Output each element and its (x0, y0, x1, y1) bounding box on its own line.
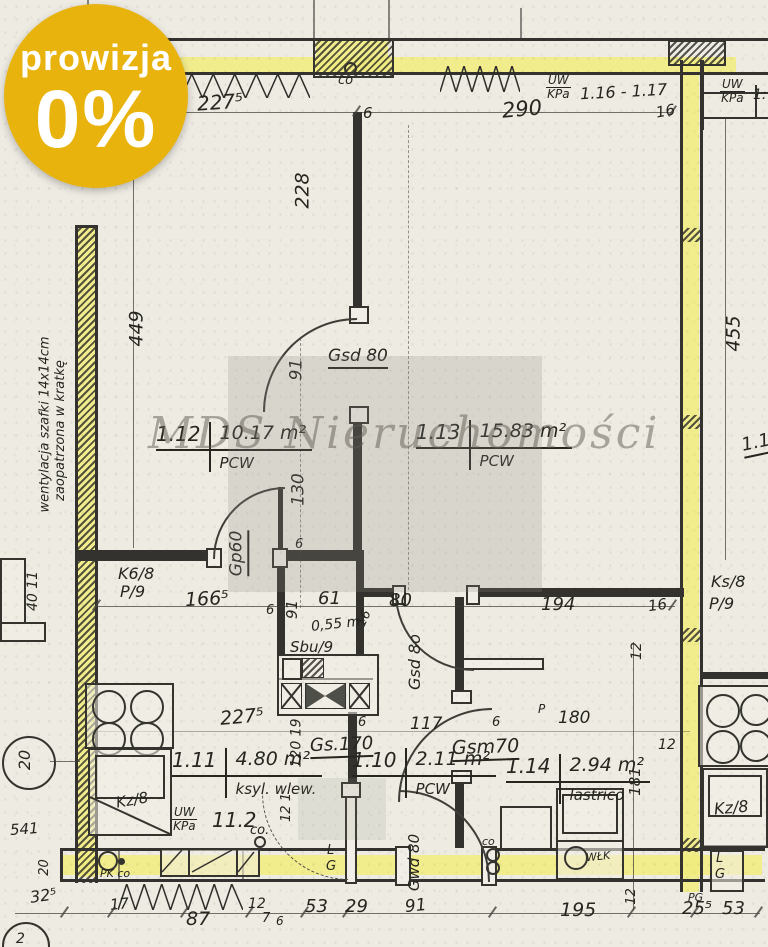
install-top-value: 1.16 - 1.17 (580, 82, 668, 103)
wall-right-hatch-2 (683, 415, 700, 429)
pipe-dot-icon (118, 858, 125, 865)
co-pipe-icon (486, 848, 500, 862)
room-113-floor: PCW (469, 449, 573, 470)
left-neighbor-box (0, 558, 26, 624)
g-label-box: G (715, 868, 725, 881)
dim-166-5: 166⁵ (185, 589, 230, 610)
install-tr-den: KPa (721, 92, 743, 105)
left-neighbor-box (0, 622, 46, 642)
wall-top-outer (85, 38, 768, 41)
shaft-label-k68: K6/8 (118, 566, 154, 582)
wall-right-hatch-3 (683, 628, 700, 642)
room-110-number: 1.10 (352, 748, 405, 777)
burner-icon (740, 730, 768, 762)
install-top-den: KPa (547, 88, 569, 101)
vent-note-line2: zaopatrzona w kratkę (54, 360, 67, 501)
axis-label-20: 20 (17, 750, 33, 770)
co-riser-label: co (338, 74, 353, 87)
dim-29: 29 (345, 898, 368, 916)
washer-drum-icon (564, 846, 588, 870)
dim-6-top: 6 (363, 106, 373, 121)
partition-112-113-upper (353, 112, 362, 318)
room-114-number: 1.14 (506, 754, 559, 783)
radiator-zigzag-bottom (118, 884, 243, 910)
axis-label-2: 2 (16, 932, 25, 946)
dim-449-vertical: 449 (128, 310, 147, 346)
burner-icon (706, 694, 740, 728)
vent-cell-small (282, 658, 302, 680)
dim-227-5-top: 227⁵ (196, 90, 243, 113)
l-label-mid: L (327, 844, 334, 857)
dim-130-vertical: 130 (291, 473, 308, 505)
install-label-top-right: UW KPa (720, 78, 745, 104)
tick (60, 906, 69, 918)
dim-17: 17 (109, 896, 129, 913)
floor-plan-scan: 20 2 227⁵ co 6 290 UW KPa 1.16 - 1.17 UW… (0, 0, 768, 947)
shaft-label-kz8-right: Kz/8 (713, 799, 749, 818)
shaft-label-p9-left: P/9 (120, 584, 145, 600)
dim-line (15, 913, 760, 914)
vent-x-icon (349, 683, 370, 709)
dim-120-19-vertical: 120 19 (290, 719, 304, 768)
dim-194: 194 (541, 596, 575, 614)
dim-12-vertical-bottom: 12 (625, 888, 638, 905)
dim-290: 290 (501, 97, 543, 121)
pk-co-label: PK co (100, 868, 130, 879)
dim-455-vertical: 455 (725, 315, 744, 351)
install-top-num: UW (546, 74, 571, 88)
door-label-gsd80: Gsd 80 (328, 348, 388, 369)
dim-53-right: 53 (722, 900, 745, 918)
burner-icon (92, 690, 126, 724)
burner-icon (706, 730, 740, 764)
shaft-label-sbu: Sbu/9 (290, 640, 333, 655)
shaft-label-p9-right: P/9 (709, 596, 734, 612)
sill-diagonals (158, 846, 258, 876)
dim-6-bottom: 6 (276, 915, 284, 927)
room-label-edge-cut: 1.1 (740, 431, 768, 458)
dim-32-5: 32⁵ (29, 886, 58, 906)
partition-112-113-lower (353, 420, 362, 553)
wall-right-inner (680, 60, 683, 892)
highlight-top-wall (88, 57, 736, 72)
door-label-gwd80: Gwd 80 (407, 834, 422, 891)
room-111-area: 4.80 m² (225, 748, 323, 777)
door-label-gsd8o: Gsd 8o (407, 634, 423, 690)
burner-icon (130, 690, 164, 724)
dim-40-11-vertical: 40 11 (26, 571, 40, 611)
washer-label-wlk: WŁK (585, 850, 610, 863)
dim-53-left: 53 (305, 898, 328, 916)
partition-112-kitchen-a (75, 550, 212, 561)
room-label-112: 1.12 10.17 m² PCW (156, 422, 312, 472)
dim-6-mid: 6 (266, 604, 274, 617)
dim-line (95, 606, 675, 607)
radiator-zigzag-top-right (440, 66, 520, 92)
room-112-number: 1.12 (156, 422, 209, 451)
dim-6-hall-a: 6 (358, 716, 366, 729)
install-label-kitchen: UW KPa (172, 806, 197, 832)
badge-line1: prowizja (20, 37, 172, 79)
dim-180: 180 (558, 710, 590, 727)
co-pipe-icon (486, 861, 500, 875)
dim-12-bath: 12 (658, 738, 676, 752)
dim-181-vertical: 181 (628, 767, 643, 796)
room-110-floor: PCW (405, 777, 496, 798)
dim-12-1-vertical: 12 1 (280, 793, 293, 822)
room-label-113: 1.13 15.83 m² PCW (416, 420, 572, 470)
gsd8o-door-leaf (462, 658, 544, 670)
dim-25-5: 25⁵ (682, 900, 712, 918)
centerline (408, 125, 409, 590)
dim-91-door: 91 (288, 359, 305, 381)
line-top-right-b (700, 117, 768, 119)
commission-badge: prowizja 0% (4, 4, 188, 188)
dim-117: 117 (410, 716, 442, 733)
dim-227-5-bottom: 227⁵ (219, 706, 264, 729)
install-tr-value: 1: (753, 88, 767, 102)
wall-bottom-left-cap (60, 848, 63, 882)
install-label-top: UW KPa (546, 74, 571, 100)
p-label: P (538, 703, 545, 715)
dim-91-mid: 91 (285, 600, 300, 619)
dim-20-vertical: 20 (38, 859, 51, 876)
room-113-area: 15.83 m² (469, 420, 573, 449)
neighbor-wall-right-a (700, 672, 768, 679)
axis-line (50, 761, 80, 762)
room-111-floor: ksyl. wlew. (225, 777, 323, 798)
dim-7: 7 (262, 912, 270, 925)
room-112-floor: PCW (209, 451, 313, 472)
co-bath-label: co (482, 836, 495, 847)
tick (488, 906, 497, 918)
vent-note-line1: wentylacja szafki 14x14cm (39, 336, 52, 512)
vent-cell-hatched (302, 658, 324, 678)
tick (668, 599, 677, 611)
vent-x-icon (281, 683, 302, 709)
dim-228-vertical: 228 (294, 172, 313, 208)
dim-541: 541 (10, 821, 40, 838)
line-above-pillar-right (388, 0, 390, 38)
install-kitchen-num: UW (172, 806, 197, 820)
tick (627, 906, 636, 918)
vent-bowtie-icon (305, 683, 346, 709)
dim-87: 87 (186, 910, 210, 929)
dim-12-bottom: 12 (248, 897, 266, 911)
dim-80: 80 (389, 592, 412, 610)
axis-circle-2 (2, 922, 50, 947)
dim-line (95, 731, 690, 732)
dim-6-hall-b: 6 (492, 716, 500, 729)
dim-61: 61 (318, 590, 341, 608)
burner-icon (740, 694, 768, 726)
dim-195: 195 (560, 901, 596, 920)
room-111-number: 1.11 (172, 748, 225, 777)
dim-6-partition: 6 (295, 538, 303, 551)
pillar-hatched-top-right (668, 40, 726, 66)
line-above-pillar-left (313, 0, 315, 38)
dim-16-right: 16 (647, 597, 668, 615)
room-110-area: 2.11 m² (405, 748, 496, 777)
dim-16-top-right: 16 (655, 102, 676, 120)
install-tr-num: UW (720, 78, 745, 92)
dim-12-right-wall: 12 (630, 642, 644, 660)
highlight-right-wall (683, 60, 699, 892)
co-kitchen-label: co. (250, 824, 269, 837)
room-113-number: 1.13 (416, 420, 469, 449)
wall-left-cap (75, 225, 98, 228)
g-label-mid: G (326, 860, 336, 873)
room-label-110: 1.10 2.11 m² PCW (352, 748, 496, 798)
partition-112-kitchen-b (278, 550, 364, 561)
room-112-area: 10.17 m² (209, 422, 313, 451)
wall-right-hatch-1 (683, 228, 700, 242)
toilet-box (500, 806, 552, 850)
tick (754, 906, 763, 918)
door-label-gp60: Gp60 (228, 531, 249, 577)
gsm70-jamb-top (451, 690, 472, 704)
dim-91-entry: 91 (404, 897, 427, 916)
line-above-top-wall (520, 8, 522, 38)
badge-line2: 0% (35, 79, 158, 161)
l-label-box: L (716, 852, 723, 865)
shaft-label-ks8: Ks/8 (711, 574, 745, 590)
install-kitchen-den: KPa (173, 820, 195, 833)
